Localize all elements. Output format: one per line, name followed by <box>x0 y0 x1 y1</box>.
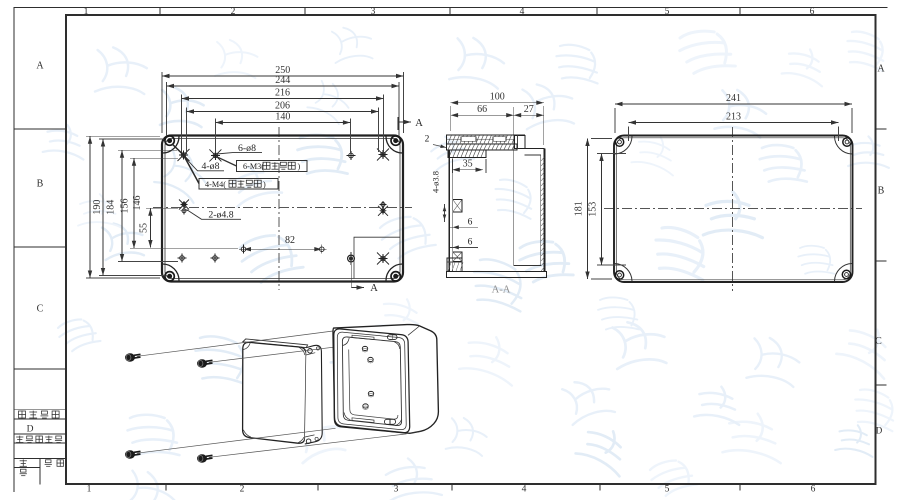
svg-text:): ) <box>298 162 301 171</box>
svg-text:100: 100 <box>490 92 505 103</box>
svg-text:2-ø4.8: 2-ø4.8 <box>208 209 233 220</box>
svg-text:B: B <box>37 179 44 190</box>
svg-text:4-M4(: 4-M4( <box>205 180 226 189</box>
svg-text:82: 82 <box>285 235 295 246</box>
svg-text:C: C <box>875 336 882 347</box>
svg-text:184: 184 <box>106 200 117 215</box>
svg-text:3: 3 <box>371 7 376 17</box>
svg-text:A: A <box>36 61 44 72</box>
svg-text:2: 2 <box>240 485 245 495</box>
svg-text:156: 156 <box>120 199 131 214</box>
svg-text:55: 55 <box>139 223 150 233</box>
svg-text:4-ø8: 4-ø8 <box>202 161 220 172</box>
svg-text:6-ø8: 6-ø8 <box>238 143 256 154</box>
svg-text:A: A <box>415 118 423 129</box>
svg-text:5: 5 <box>665 7 670 17</box>
svg-text:1: 1 <box>84 7 89 17</box>
svg-text:206: 206 <box>275 101 290 112</box>
svg-text:146: 146 <box>132 196 143 211</box>
svg-text:1: 1 <box>87 485 92 495</box>
svg-text:5: 5 <box>665 485 670 495</box>
svg-text:4: 4 <box>522 485 527 495</box>
svg-text:241: 241 <box>726 93 741 104</box>
svg-text:D: D <box>27 425 34 435</box>
svg-text:6: 6 <box>811 485 816 495</box>
svg-text:4-ø3.8: 4-ø3.8 <box>431 171 441 193</box>
svg-text:2: 2 <box>425 135 430 145</box>
svg-text:6-M3(: 6-M3( <box>243 162 264 171</box>
svg-text:27: 27 <box>524 104 534 115</box>
svg-text:140: 140 <box>275 112 290 123</box>
svg-text:A: A <box>877 64 885 75</box>
svg-text:153: 153 <box>588 202 599 217</box>
svg-text:D: D <box>876 426 883 436</box>
svg-text:190: 190 <box>92 200 103 215</box>
svg-text:181: 181 <box>574 201 585 216</box>
svg-text:244: 244 <box>275 75 290 86</box>
svg-text:213: 213 <box>726 112 741 123</box>
svg-text:6: 6 <box>468 238 473 248</box>
svg-text:B: B <box>878 186 885 197</box>
svg-text:A: A <box>370 283 378 294</box>
svg-text:66: 66 <box>477 104 487 115</box>
svg-text:216: 216 <box>275 88 290 99</box>
svg-text:6: 6 <box>468 218 473 228</box>
svg-text:35: 35 <box>463 159 473 170</box>
svg-text:2: 2 <box>231 7 236 17</box>
svg-text:6: 6 <box>810 7 815 17</box>
svg-text:A-A: A-A <box>492 285 511 296</box>
svg-text:4: 4 <box>520 7 525 17</box>
svg-text:): ) <box>263 180 266 189</box>
svg-text:3: 3 <box>394 485 399 495</box>
svg-text:C: C <box>37 304 44 315</box>
